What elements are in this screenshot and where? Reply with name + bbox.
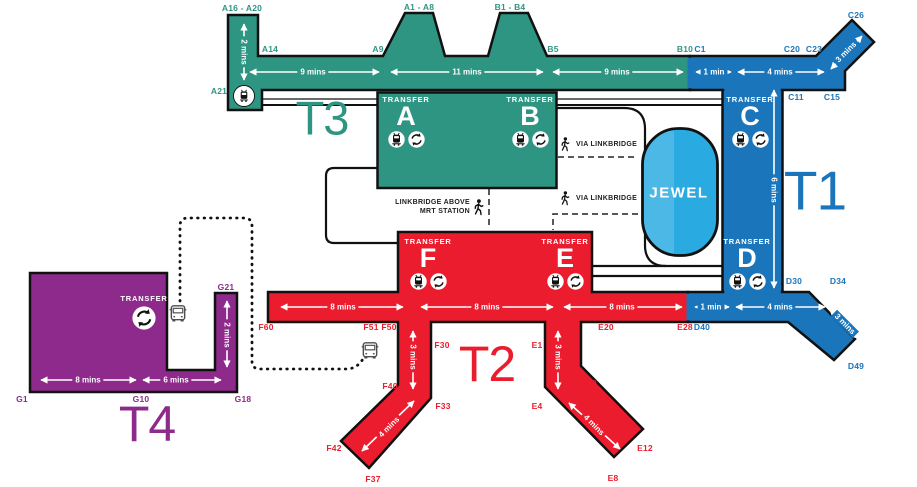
gate-label: C26 bbox=[848, 10, 864, 20]
gate-label: D30 bbox=[786, 276, 802, 286]
transfer-point-e: TRANSFER E bbox=[523, 237, 607, 290]
time-label: 3 mins bbox=[409, 341, 418, 372]
gate-label: C11 bbox=[788, 92, 804, 102]
gate-label: A9 bbox=[372, 44, 383, 54]
gate-label: D46 bbox=[802, 322, 818, 332]
skytrain-icon bbox=[732, 131, 749, 148]
gate-label: E1 bbox=[532, 340, 543, 350]
time-label: 8 mins bbox=[327, 303, 358, 312]
t4-building bbox=[30, 273, 237, 392]
gate-label: F60 bbox=[258, 322, 273, 332]
transfer-letter: F bbox=[386, 246, 470, 271]
junction-cover-top bbox=[724, 88, 781, 93]
gate-label: A14 bbox=[262, 44, 278, 54]
time-label: 8 mins bbox=[606, 303, 637, 312]
transfer-icon bbox=[408, 131, 425, 148]
gate-label: E20 bbox=[598, 322, 614, 332]
bus-icon bbox=[168, 303, 188, 324]
transfer-letter: B bbox=[488, 104, 572, 129]
transfer-icon bbox=[567, 273, 584, 290]
walking-person-icon bbox=[559, 191, 571, 206]
gate-label: C20 bbox=[784, 44, 800, 54]
gate-label: F51 bbox=[363, 322, 378, 332]
time-label: 4 mins bbox=[764, 303, 795, 312]
gate-label: B1 - B4 bbox=[495, 2, 526, 12]
skytrain-icon bbox=[512, 131, 529, 148]
time-label: 4 mins bbox=[764, 68, 795, 77]
gate-label: C23 bbox=[806, 44, 822, 54]
gate-label: G10 bbox=[133, 394, 150, 404]
walking-person-icon bbox=[559, 137, 571, 152]
gate-label: E4 bbox=[532, 401, 543, 411]
gate-label: F50 bbox=[381, 322, 396, 332]
t1-label: T1 bbox=[784, 164, 846, 219]
transfer-heading: TRANSFER bbox=[109, 294, 179, 303]
transfer-letter: D bbox=[705, 246, 789, 271]
gate-label: D40 bbox=[694, 322, 710, 332]
t4-label: T4 bbox=[119, 399, 175, 449]
transfer-point-c: TRANSFER C bbox=[708, 95, 792, 148]
transfer-point-f: TRANSFER F bbox=[386, 237, 470, 290]
time-label: 2 mins bbox=[240, 36, 249, 67]
gate-label: B10 bbox=[677, 44, 693, 54]
gate-label: E8 bbox=[608, 473, 619, 483]
gate-label: E10 bbox=[581, 378, 597, 388]
transfer-letter: A bbox=[364, 104, 448, 129]
gate-label: D49 bbox=[848, 361, 864, 371]
gate-label: B5 bbox=[547, 44, 558, 54]
gate-label: A16 - A20 bbox=[222, 3, 262, 13]
airport-terminal-map: T3 T1 T2 T4 JEWEL TRANSFER A TRANSFER B … bbox=[0, 0, 917, 487]
via-linkbridge-note-top: VIA LINKBRIDGE bbox=[576, 141, 637, 148]
mrt-linkbridge-note: LINKBRIDGE ABOVE MRT STATION bbox=[378, 199, 470, 216]
mrt-note-line1: LINKBRIDGE ABOVE bbox=[395, 199, 470, 206]
gate-label: E12 bbox=[637, 443, 653, 453]
gate-label: G21 bbox=[218, 282, 235, 292]
time-label: 6 mins bbox=[160, 376, 191, 385]
transfer-icon bbox=[532, 131, 549, 148]
skytrain-icon bbox=[410, 273, 427, 290]
band-seam-cover-2 bbox=[687, 294, 693, 321]
time-label: 1 min bbox=[701, 68, 728, 77]
mrt-note-line2: MRT STATION bbox=[420, 208, 470, 215]
t2-label: T2 bbox=[459, 339, 515, 389]
time-label: 6 mins bbox=[770, 174, 779, 205]
transfer-letter: C bbox=[708, 104, 792, 129]
time-label: 11 mins bbox=[449, 68, 484, 77]
skytrain-icon bbox=[729, 273, 746, 290]
gate-label: E28 bbox=[677, 322, 693, 332]
bus-icon bbox=[360, 340, 380, 361]
junction-cover-bottom bbox=[724, 290, 781, 295]
transfer-point-d: TRANSFER D bbox=[705, 237, 789, 290]
skytrain-icon bbox=[234, 86, 255, 107]
time-label: 2 mins bbox=[223, 319, 232, 350]
gate-label: D34 bbox=[830, 276, 846, 286]
jewel-label: JEWEL bbox=[649, 185, 708, 202]
time-label: 9 mins bbox=[601, 68, 632, 77]
skytrain-icon bbox=[547, 273, 564, 290]
transfer-icon bbox=[749, 273, 766, 290]
time-label: 8 mins bbox=[72, 376, 103, 385]
gate-label: F42 bbox=[326, 443, 341, 453]
gate-label: F30 bbox=[434, 340, 449, 350]
time-label: 9 mins bbox=[297, 68, 328, 77]
transfer-icon bbox=[430, 273, 447, 290]
time-label: 3 mins bbox=[554, 341, 563, 372]
transfer-point-a: TRANSFER A bbox=[364, 95, 448, 148]
via-linkbridge-note-bottom: VIA LINKBRIDGE bbox=[576, 195, 637, 202]
time-label: 8 mins bbox=[471, 303, 502, 312]
gate-label: G1 bbox=[16, 394, 28, 404]
gate-label: A21 bbox=[211, 86, 227, 96]
gate-label: A1 - A8 bbox=[404, 2, 434, 12]
band-seam-cover bbox=[688, 58, 694, 89]
time-label: 1 min bbox=[698, 303, 725, 312]
gate-label: F37 bbox=[365, 474, 380, 484]
walking-person-icon bbox=[472, 199, 485, 216]
gate-label: F40 bbox=[382, 381, 397, 391]
skytrain-icon bbox=[388, 131, 405, 148]
gate-label: C15 bbox=[824, 92, 840, 102]
gate-label: F33 bbox=[435, 401, 450, 411]
via-linkbridge-bottom-line bbox=[553, 214, 638, 230]
transfer-icon bbox=[752, 131, 769, 148]
gate-label: C1 bbox=[694, 44, 705, 54]
transfer-icon bbox=[132, 306, 156, 330]
t3-label: T3 bbox=[296, 95, 349, 142]
gate-label: G18 bbox=[235, 394, 252, 404]
transfer-letter: E bbox=[523, 246, 607, 271]
